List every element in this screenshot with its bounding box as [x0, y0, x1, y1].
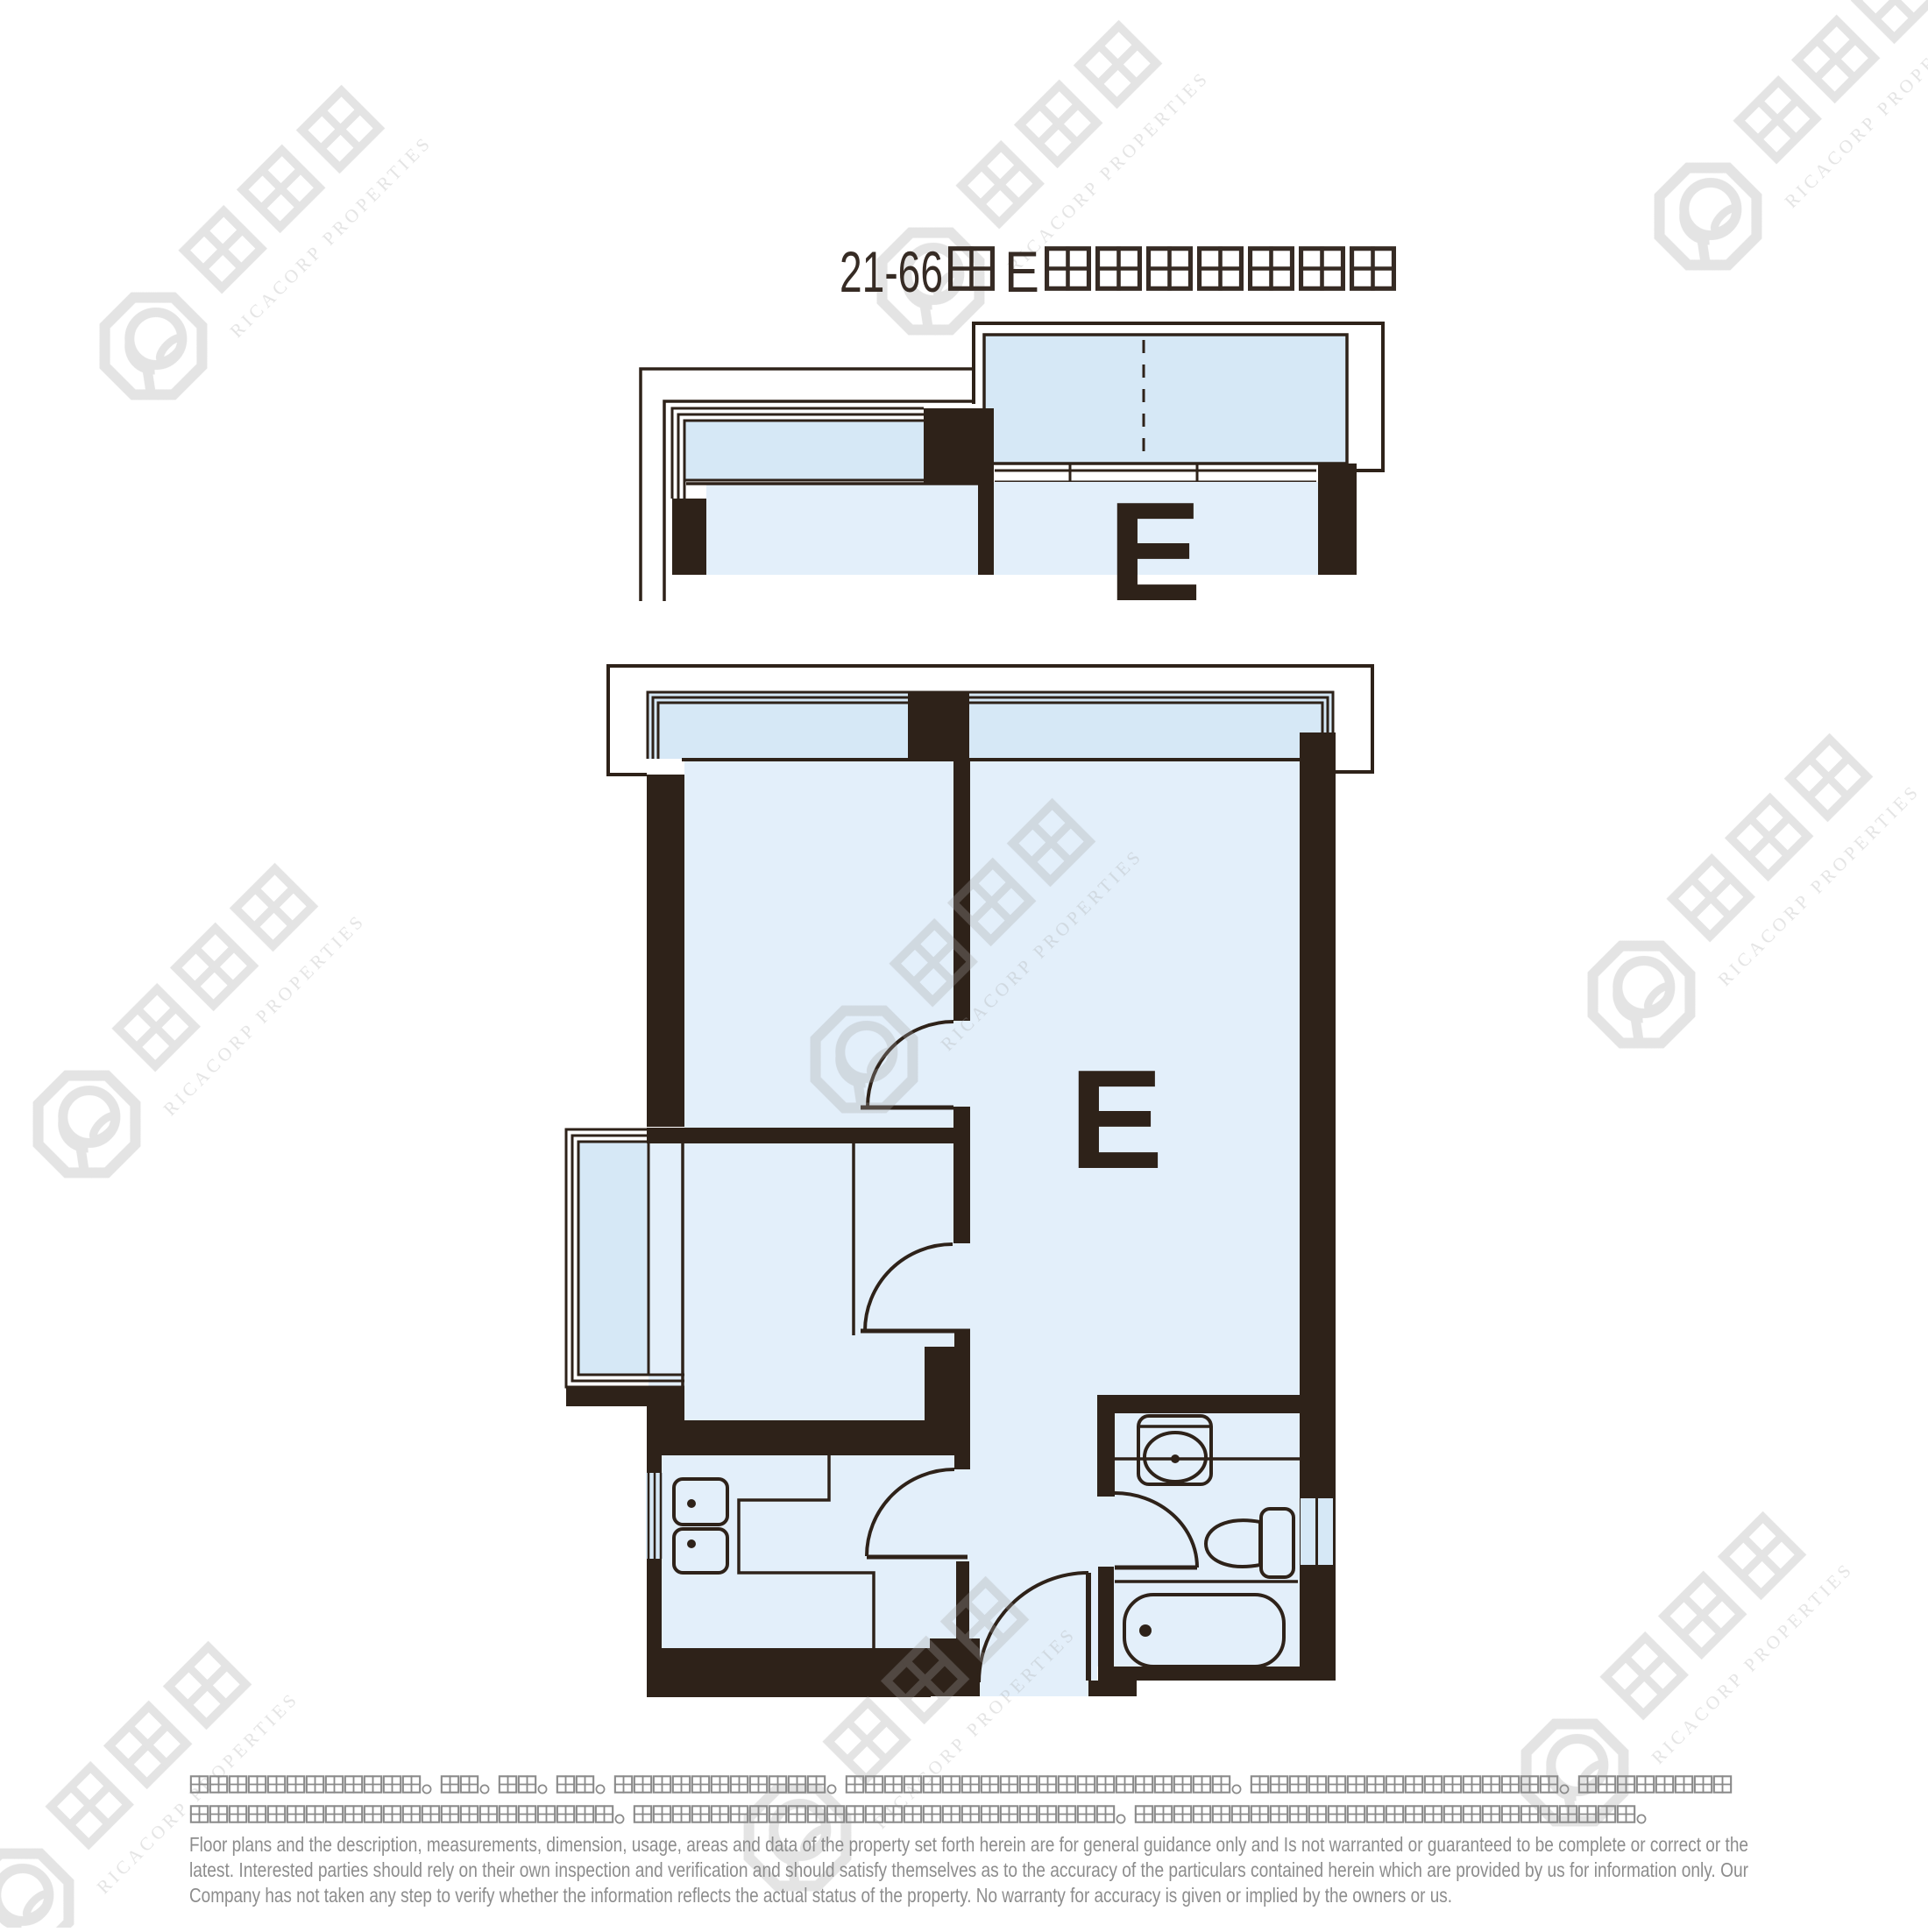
svg-text:E: E: [1069, 1041, 1163, 1199]
svg-text:21-66: 21-66: [840, 239, 943, 304]
svg-text:latest. Interested parties sho: latest. Interested parties should rely o…: [189, 1858, 1748, 1881]
svg-text:E: E: [1108, 473, 1201, 631]
svg-text:Company has not taken any step: Company has not taken any step to verify…: [189, 1884, 1452, 1907]
svg-text:E: E: [1004, 239, 1039, 304]
svg-text:Floor plans and the descriptio: Floor plans and the description, measure…: [189, 1833, 1748, 1856]
